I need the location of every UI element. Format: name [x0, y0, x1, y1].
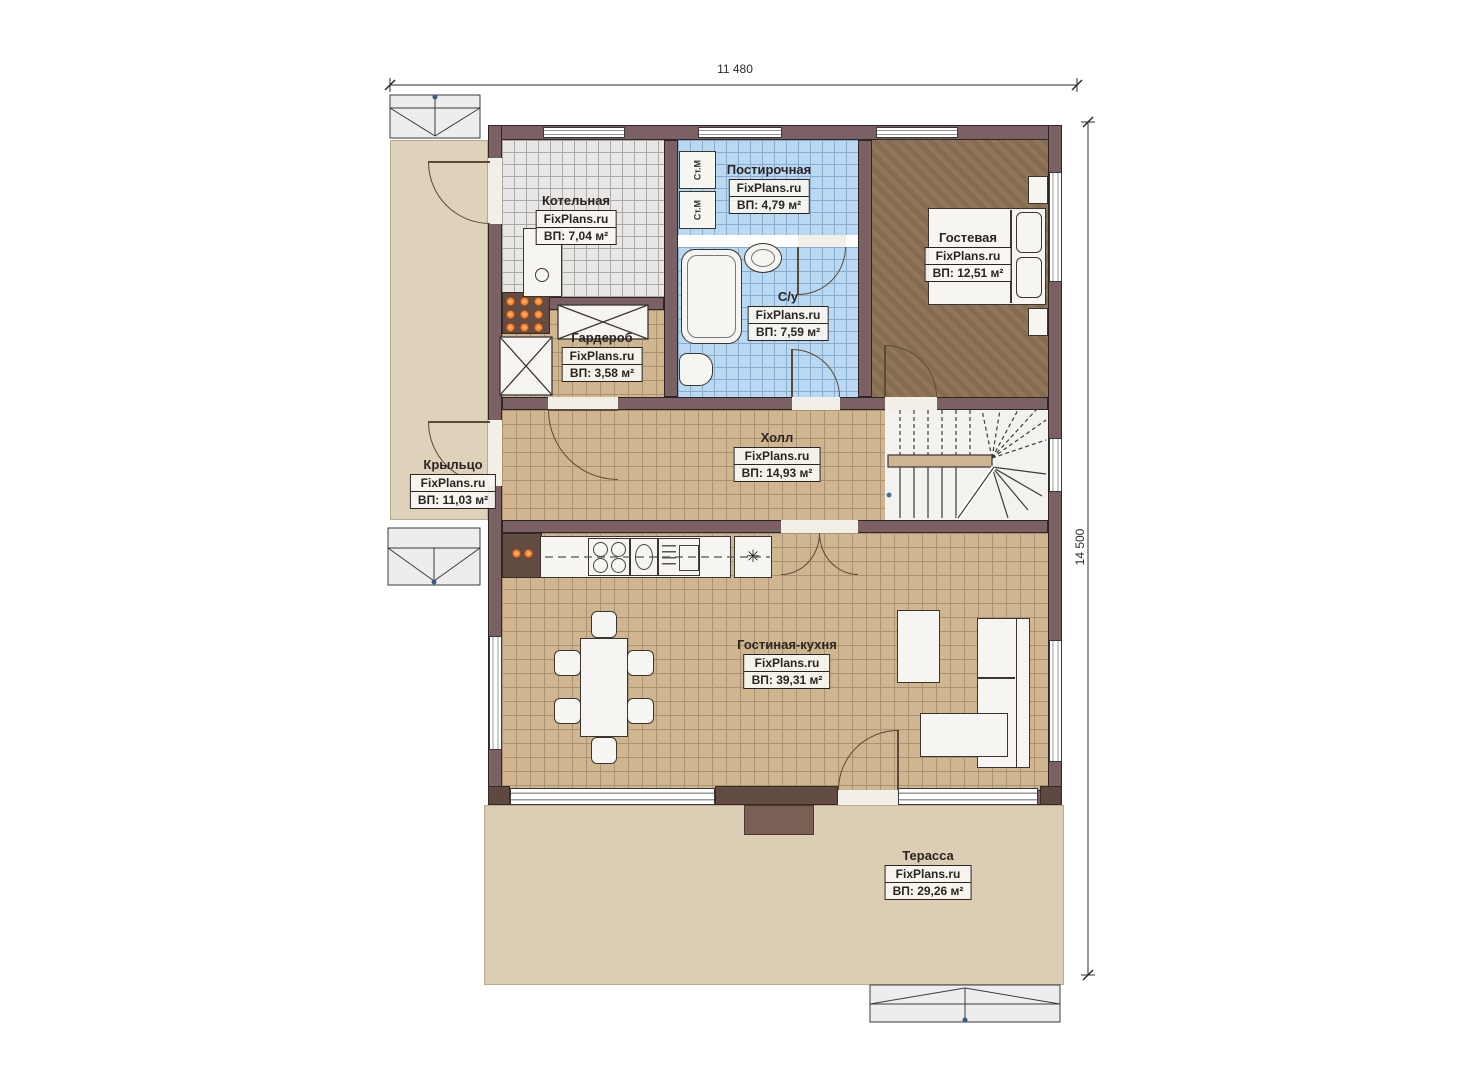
area-text: ВП: 12,51 м² [926, 265, 1011, 281]
brand-text: FixPlans.ru [886, 866, 971, 883]
door-leaf [791, 349, 793, 397]
dimension-height-label: 14 500 [1073, 507, 1087, 587]
radiator-icon [520, 310, 529, 319]
brand-text: FixPlans.ru [730, 180, 809, 197]
wall [548, 297, 664, 310]
brand-text: FixPlans.ru [411, 475, 495, 492]
radiator-icon [520, 297, 529, 306]
porch-canopy-symbol [390, 95, 480, 139]
chair [591, 611, 617, 638]
floor-plan: Ст.М Ст.М ✳ [0, 0, 1473, 1080]
pillow [1016, 257, 1042, 298]
room-label-porch: Крыльцо FixPlans.ru ВП: 11,03 м² [410, 457, 496, 509]
radiator-icon [506, 323, 515, 332]
room-info-box: FixPlans.ru ВП: 4,79 м² [729, 179, 810, 214]
door-opening [488, 158, 502, 224]
radiator-icon [534, 310, 543, 319]
nightstand [1028, 176, 1048, 204]
tv-stand [897, 610, 940, 683]
area-text: ВП: 29,26 м² [886, 883, 971, 899]
chair [627, 698, 654, 724]
wall [664, 140, 678, 397]
window [1049, 640, 1062, 762]
washer-label: Ст.М [679, 192, 717, 229]
brand-text: FixPlans.ru [749, 307, 828, 324]
room-label-laundry: Постирочная FixPlans.ru ВП: 4,79 м² [727, 162, 811, 214]
stove [588, 538, 630, 576]
room-name: Гостиная-кухня [737, 637, 837, 652]
room-name: Крыльцо [410, 457, 496, 472]
room-info-box: FixPlans.ru ВП: 14,93 м² [734, 447, 821, 482]
room-label-hall: Холл FixPlans.ru ВП: 14,93 м² [734, 430, 821, 482]
room-label-bathroom: С/у FixPlans.ru ВП: 7,59 м² [748, 289, 829, 341]
brand-text: FixPlans.ru [735, 448, 820, 465]
area-text: ВП: 11,03 м² [411, 492, 495, 508]
fireplace-wall [715, 786, 838, 805]
door-opening [781, 520, 858, 533]
wall [858, 140, 872, 397]
chair [591, 737, 617, 764]
door-leaf [884, 345, 886, 397]
room-info-box: FixPlans.ru ВП: 39,31 м² [744, 654, 831, 689]
room-label-boiler: Котельная FixPlans.ru ВП: 7,04 м² [536, 193, 617, 245]
room-info-box: FixPlans.ru ВП: 7,04 м² [536, 210, 617, 245]
room-info-box: FixPlans.ru ВП: 3,58 м² [562, 347, 643, 382]
dimension-top [385, 78, 1082, 92]
bathtub [681, 249, 742, 344]
door-leaf [797, 247, 799, 295]
area-text: ВП: 7,04 м² [537, 228, 616, 244]
kitchen-wall-stub [502, 533, 542, 578]
wall-corner [488, 786, 510, 805]
room-name: Холл [734, 430, 821, 445]
brand-text: FixPlans.ru [745, 655, 830, 672]
dimension-width-label: 11 480 [700, 62, 770, 76]
fireplace-chimney [744, 805, 814, 835]
room-label-terrace: Терасса FixPlans.ru ВП: 29,26 м² [885, 848, 972, 900]
radiator-icon [534, 323, 543, 332]
pillow [1016, 212, 1042, 253]
wall [502, 520, 1048, 533]
chair [554, 650, 581, 676]
area-text: ВП: 14,93 м² [735, 465, 820, 481]
terrace-steps-symbol [870, 985, 1060, 1023]
room-info-box: FixPlans.ru ВП: 11,03 м² [410, 474, 496, 509]
door-leaf [548, 409, 618, 411]
oven [658, 538, 700, 576]
door-opening [885, 397, 937, 410]
window [898, 788, 1038, 805]
window [876, 127, 958, 138]
nightstand [1028, 308, 1048, 336]
door-leaf [428, 421, 490, 423]
wall-corner [1040, 786, 1062, 805]
room-name: С/у [748, 289, 829, 304]
sink [744, 243, 782, 273]
door-opening [838, 790, 898, 805]
window [1049, 438, 1062, 492]
area-text: ВП: 4,79 м² [730, 197, 809, 213]
boiler-dial [535, 268, 549, 282]
room-info-box: FixPlans.ru ВП: 7,59 м² [748, 306, 829, 341]
door-leaf [897, 730, 899, 790]
room-info-box: FixPlans.ru ВП: 29,26 м² [885, 865, 972, 900]
dining-table [580, 638, 628, 737]
chair [554, 698, 581, 724]
radiator-icon [524, 549, 533, 558]
area-text: ВП: 3,58 м² [563, 365, 642, 381]
kitchen-sink [630, 538, 658, 576]
radiator-icon [506, 297, 515, 306]
radiator-icon [512, 549, 521, 558]
sofa-chaise [920, 713, 1008, 757]
room-label-living-kitchen: Гостиная-кухня FixPlans.ru ВП: 39,31 м² [737, 637, 837, 689]
chair [627, 650, 654, 676]
window [1049, 172, 1062, 282]
door-opening [792, 397, 840, 410]
radiator-icon [520, 323, 529, 332]
washer-label: Ст.М [679, 152, 717, 189]
porch-steps-symbol [388, 528, 480, 585]
room-label-guest: Гостевая FixPlans.ru ВП: 12,51 м² [925, 230, 1012, 282]
room-name: Котельная [536, 193, 617, 208]
brand-text: FixPlans.ru [926, 248, 1011, 265]
radiator-icon [506, 310, 515, 319]
window [489, 636, 502, 750]
door-leaf [428, 161, 490, 163]
door-opening [798, 235, 846, 247]
brand-text: FixPlans.ru [563, 348, 642, 365]
room-name: Постирочная [727, 162, 811, 177]
room-name: Гардероб [562, 330, 643, 345]
area-text: ВП: 39,31 м² [745, 672, 830, 688]
window [510, 788, 715, 805]
radiator-icon [534, 297, 543, 306]
room-name: Гостевая [925, 230, 1012, 245]
room-label-wardrobe: Гардероб FixPlans.ru ВП: 3,58 м² [562, 330, 643, 382]
fridge-symbol: ✳ [734, 536, 772, 578]
room-info-box: FixPlans.ru ВП: 12,51 м² [925, 247, 1012, 282]
window [543, 127, 625, 138]
window [698, 127, 782, 138]
area-text: ВП: 7,59 м² [749, 324, 828, 340]
brand-text: FixPlans.ru [537, 211, 616, 228]
room-name: Терасса [885, 848, 972, 863]
stairs-floor [885, 410, 1048, 520]
toilet [679, 353, 713, 386]
